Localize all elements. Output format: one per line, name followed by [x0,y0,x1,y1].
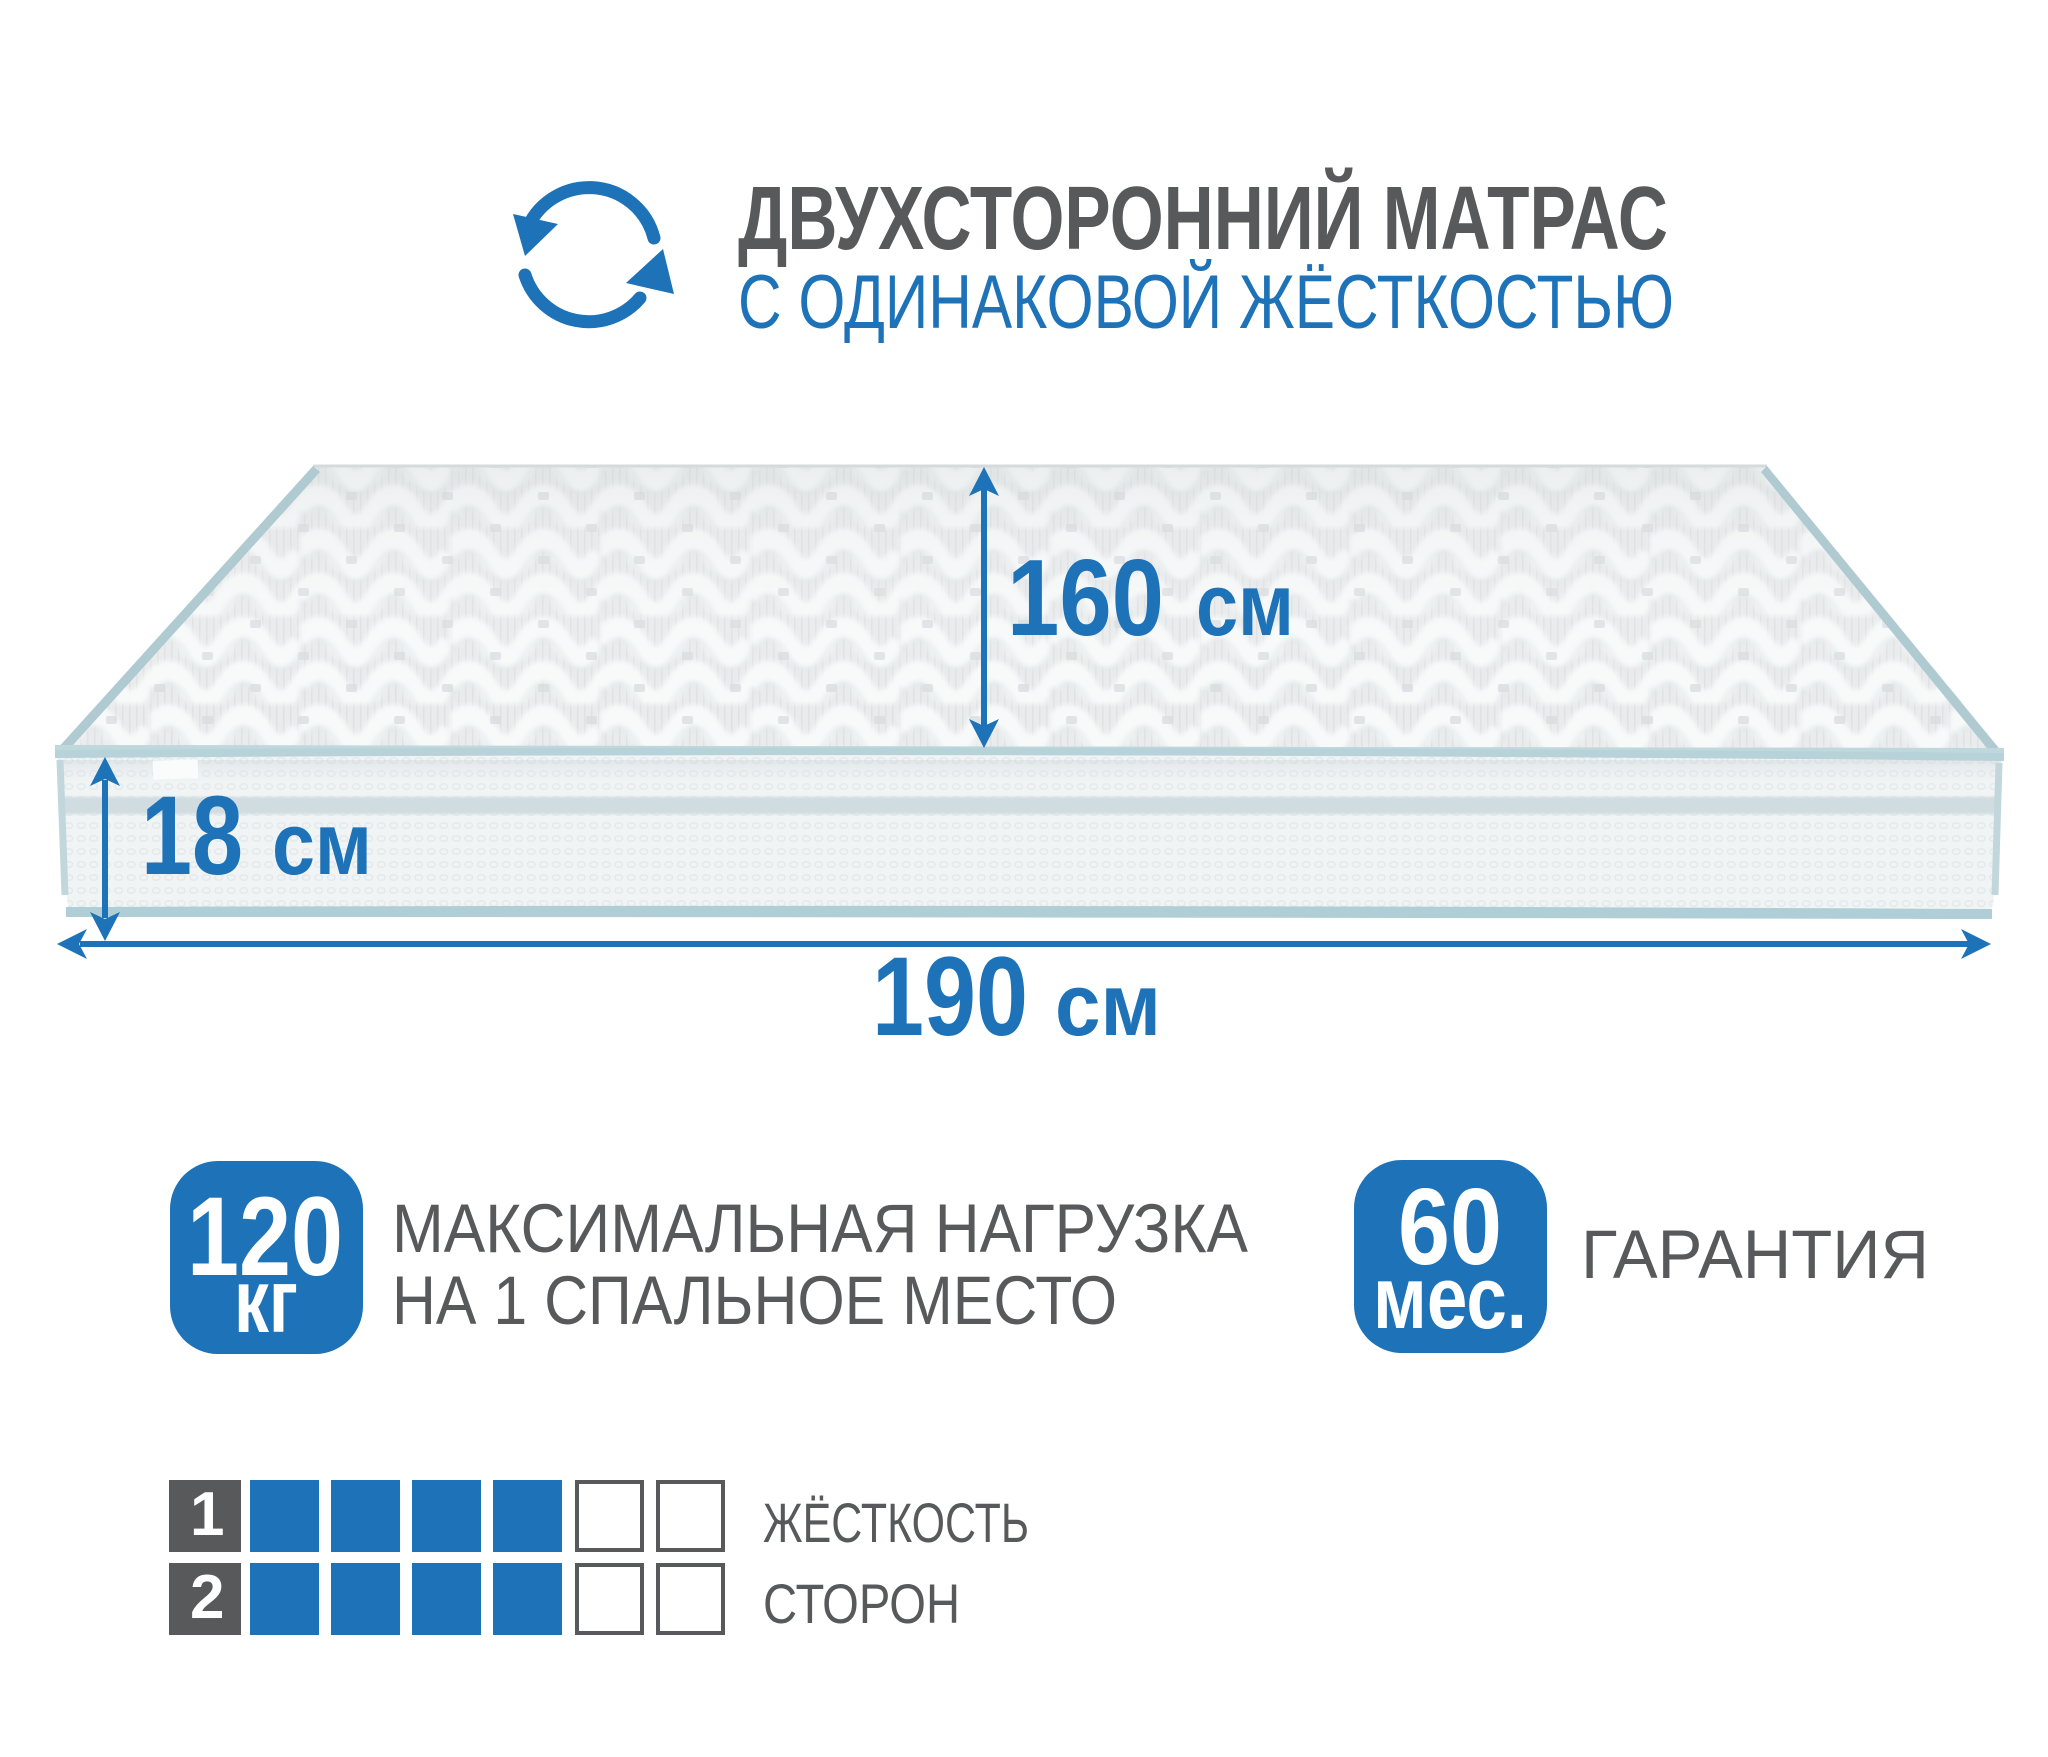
svg-text:18: 18 [141,773,243,898]
svg-text:160: 160 [1007,537,1164,659]
svg-text:СТОРОН: СТОРОН [763,1572,960,1635]
svg-text:ДВУХСТОРОННИЙ МАТРАС: ДВУХСТОРОННИЙ МАТРАС [738,166,1668,269]
svg-text:2: 2 [190,1563,224,1632]
svg-text:НА 1 СПАЛЬНОЕ МЕСТО: НА 1 СПАЛЬНОЕ МЕСТО [392,1262,1117,1339]
svg-text:см: см [1196,555,1294,654]
svg-text:см: см [1055,955,1161,1054]
svg-text:кг: кг [234,1252,298,1352]
svg-text:мес.: мес. [1373,1248,1527,1347]
svg-text:1: 1 [190,1480,224,1549]
svg-text:ГАРАНТИЯ: ГАРАНТИЯ [1581,1216,1929,1293]
svg-text:см: см [272,794,372,893]
svg-text:190: 190 [872,934,1028,1059]
svg-text:МАКСИМАЛЬНАЯ НАГРУЗКА: МАКСИМАЛЬНАЯ НАГРУЗКА [392,1190,1248,1267]
svg-text:С ОДИНАКОВОЙ ЖЁСТКОСТЬЮ: С ОДИНАКОВОЙ ЖЁСТКОСТЬЮ [738,259,1674,345]
svg-text:ЖЁСТКОСТЬ: ЖЁСТКОСТЬ [763,1491,1029,1554]
